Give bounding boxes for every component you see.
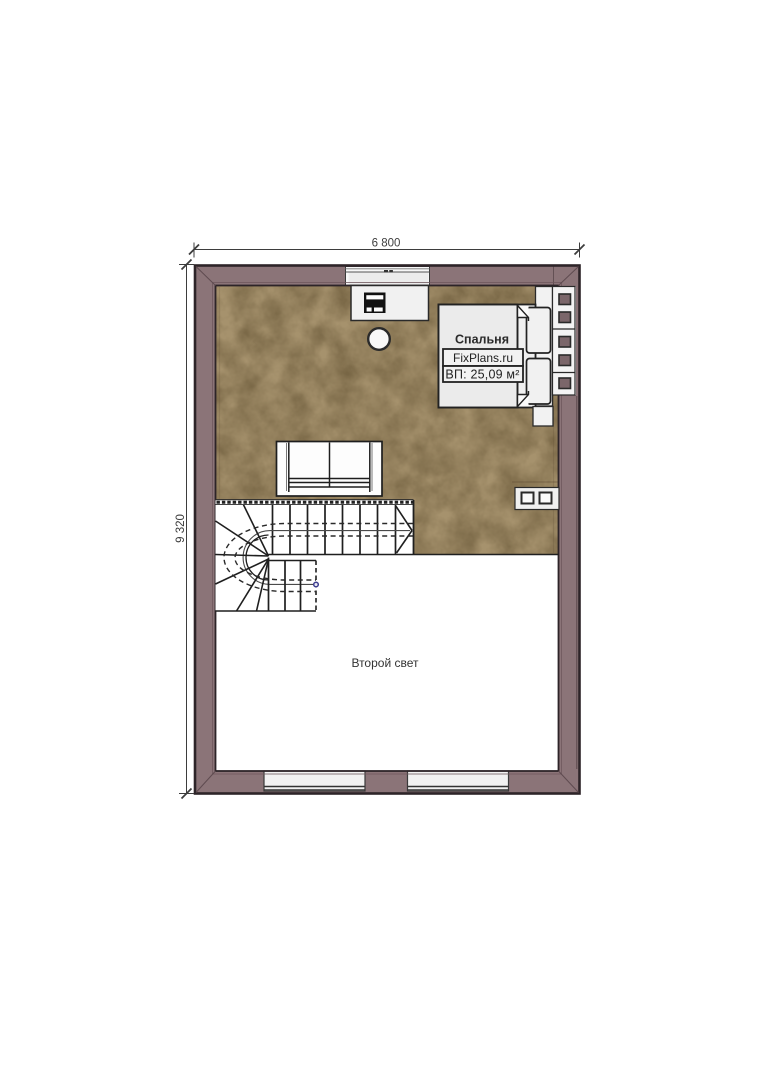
- svg-text:9 320: 9 320: [175, 514, 187, 543]
- svg-text:ВП: 25,09 м²: ВП: 25,09 м²: [445, 367, 519, 381]
- svg-text:6 800: 6 800: [372, 238, 401, 250]
- svg-text:Второй свет: Второй свет: [351, 656, 419, 670]
- svg-text:Спальня: Спальня: [455, 333, 509, 347]
- svg-text:FixPlans.ru: FixPlans.ru: [453, 351, 513, 365]
